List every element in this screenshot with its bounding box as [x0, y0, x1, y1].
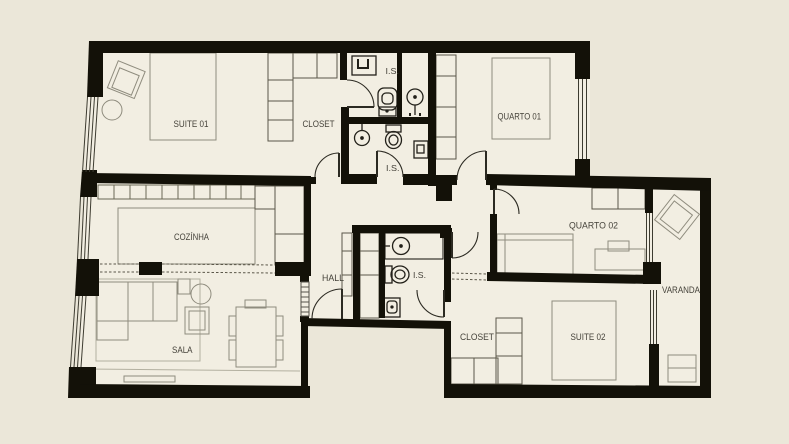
- svg-text:I.S.: I.S.: [386, 163, 400, 173]
- svg-text:SUITE 01: SUITE 01: [174, 119, 209, 129]
- svg-text:I.S.: I.S.: [386, 66, 400, 76]
- svg-text:SUITE 02: SUITE 02: [571, 332, 606, 342]
- svg-text:COZÍNHA: COZÍNHA: [174, 232, 209, 242]
- svg-text:CLOSET: CLOSET: [460, 332, 494, 342]
- svg-text:SALA: SALA: [172, 345, 193, 355]
- svg-text:VARANDA: VARANDA: [662, 285, 700, 295]
- svg-text:HALL: HALL: [322, 273, 344, 283]
- svg-text:CLOSET: CLOSET: [303, 119, 335, 129]
- svg-text:QUARTO 01: QUARTO 01: [498, 112, 542, 122]
- svg-text:I.S.: I.S.: [413, 270, 426, 280]
- svg-text:QUARTO 02: QUARTO 02: [569, 221, 618, 231]
